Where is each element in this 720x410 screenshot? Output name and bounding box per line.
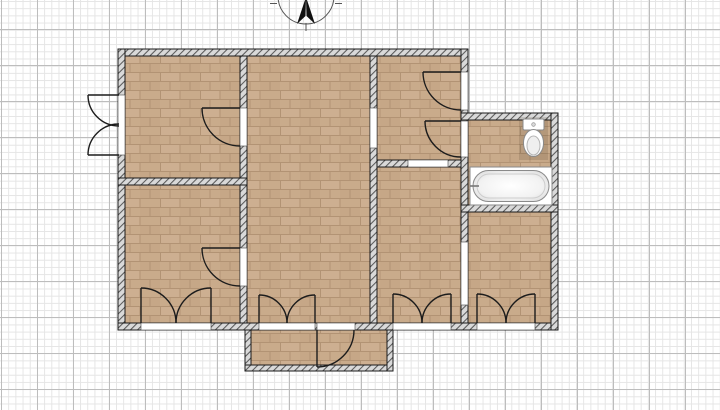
wall-exterior-top[interactable] [118,49,468,56]
bathtub-icon[interactable] [470,167,552,205]
door-exterior-left-bottom-swing-arc [88,124,119,155]
wall-bathroom-right[interactable] [551,113,558,330]
passage-hallway-to-middle [408,160,448,167]
north-compass-icon[interactable] [270,0,342,31]
wall-porch-bottom[interactable] [245,365,393,371]
wall-porch-right[interactable] [387,330,393,371]
opening-double-door-center [259,323,315,330]
opening-bathroom-door [461,121,468,157]
north-needle-left [297,0,306,24]
wall-bathroom-divider[interactable] [461,205,558,212]
opening-double-door-botright [477,323,535,330]
wall-left-rooms-divider[interactable] [118,178,247,185]
opening-double-door-left [141,323,211,330]
passage-middle-to-bottom-right [461,242,468,305]
opening-room-bottom-left [240,248,247,286]
room-center-floor[interactable] [247,56,370,323]
door-exterior-left-top-swing-arc [88,95,119,126]
door-exterior-left-bottom[interactable] [88,124,119,155]
opening-exterior-left-door [118,95,125,155]
opening-entry-door [461,72,468,110]
floorplan-drawing [0,0,720,410]
wall-interior-right[interactable] [370,56,377,323]
north-needle-right [306,0,315,24]
room-bottom-right-floor[interactable] [468,212,551,323]
opening-porch-door [317,323,355,330]
porch-floor[interactable] [251,330,387,365]
toilet-icon[interactable] [519,117,548,160]
opening-double-door-midright [393,323,451,330]
wall-exterior-left[interactable] [118,49,125,330]
room-top-left-floor[interactable] [125,56,240,178]
room-middle-right-floor[interactable] [377,167,461,323]
floorplan-canvas[interactable] [0,0,720,410]
passage-center-hallway [370,108,377,148]
opening-room-top-left [240,108,247,146]
door-exterior-left-top[interactable] [88,95,119,126]
